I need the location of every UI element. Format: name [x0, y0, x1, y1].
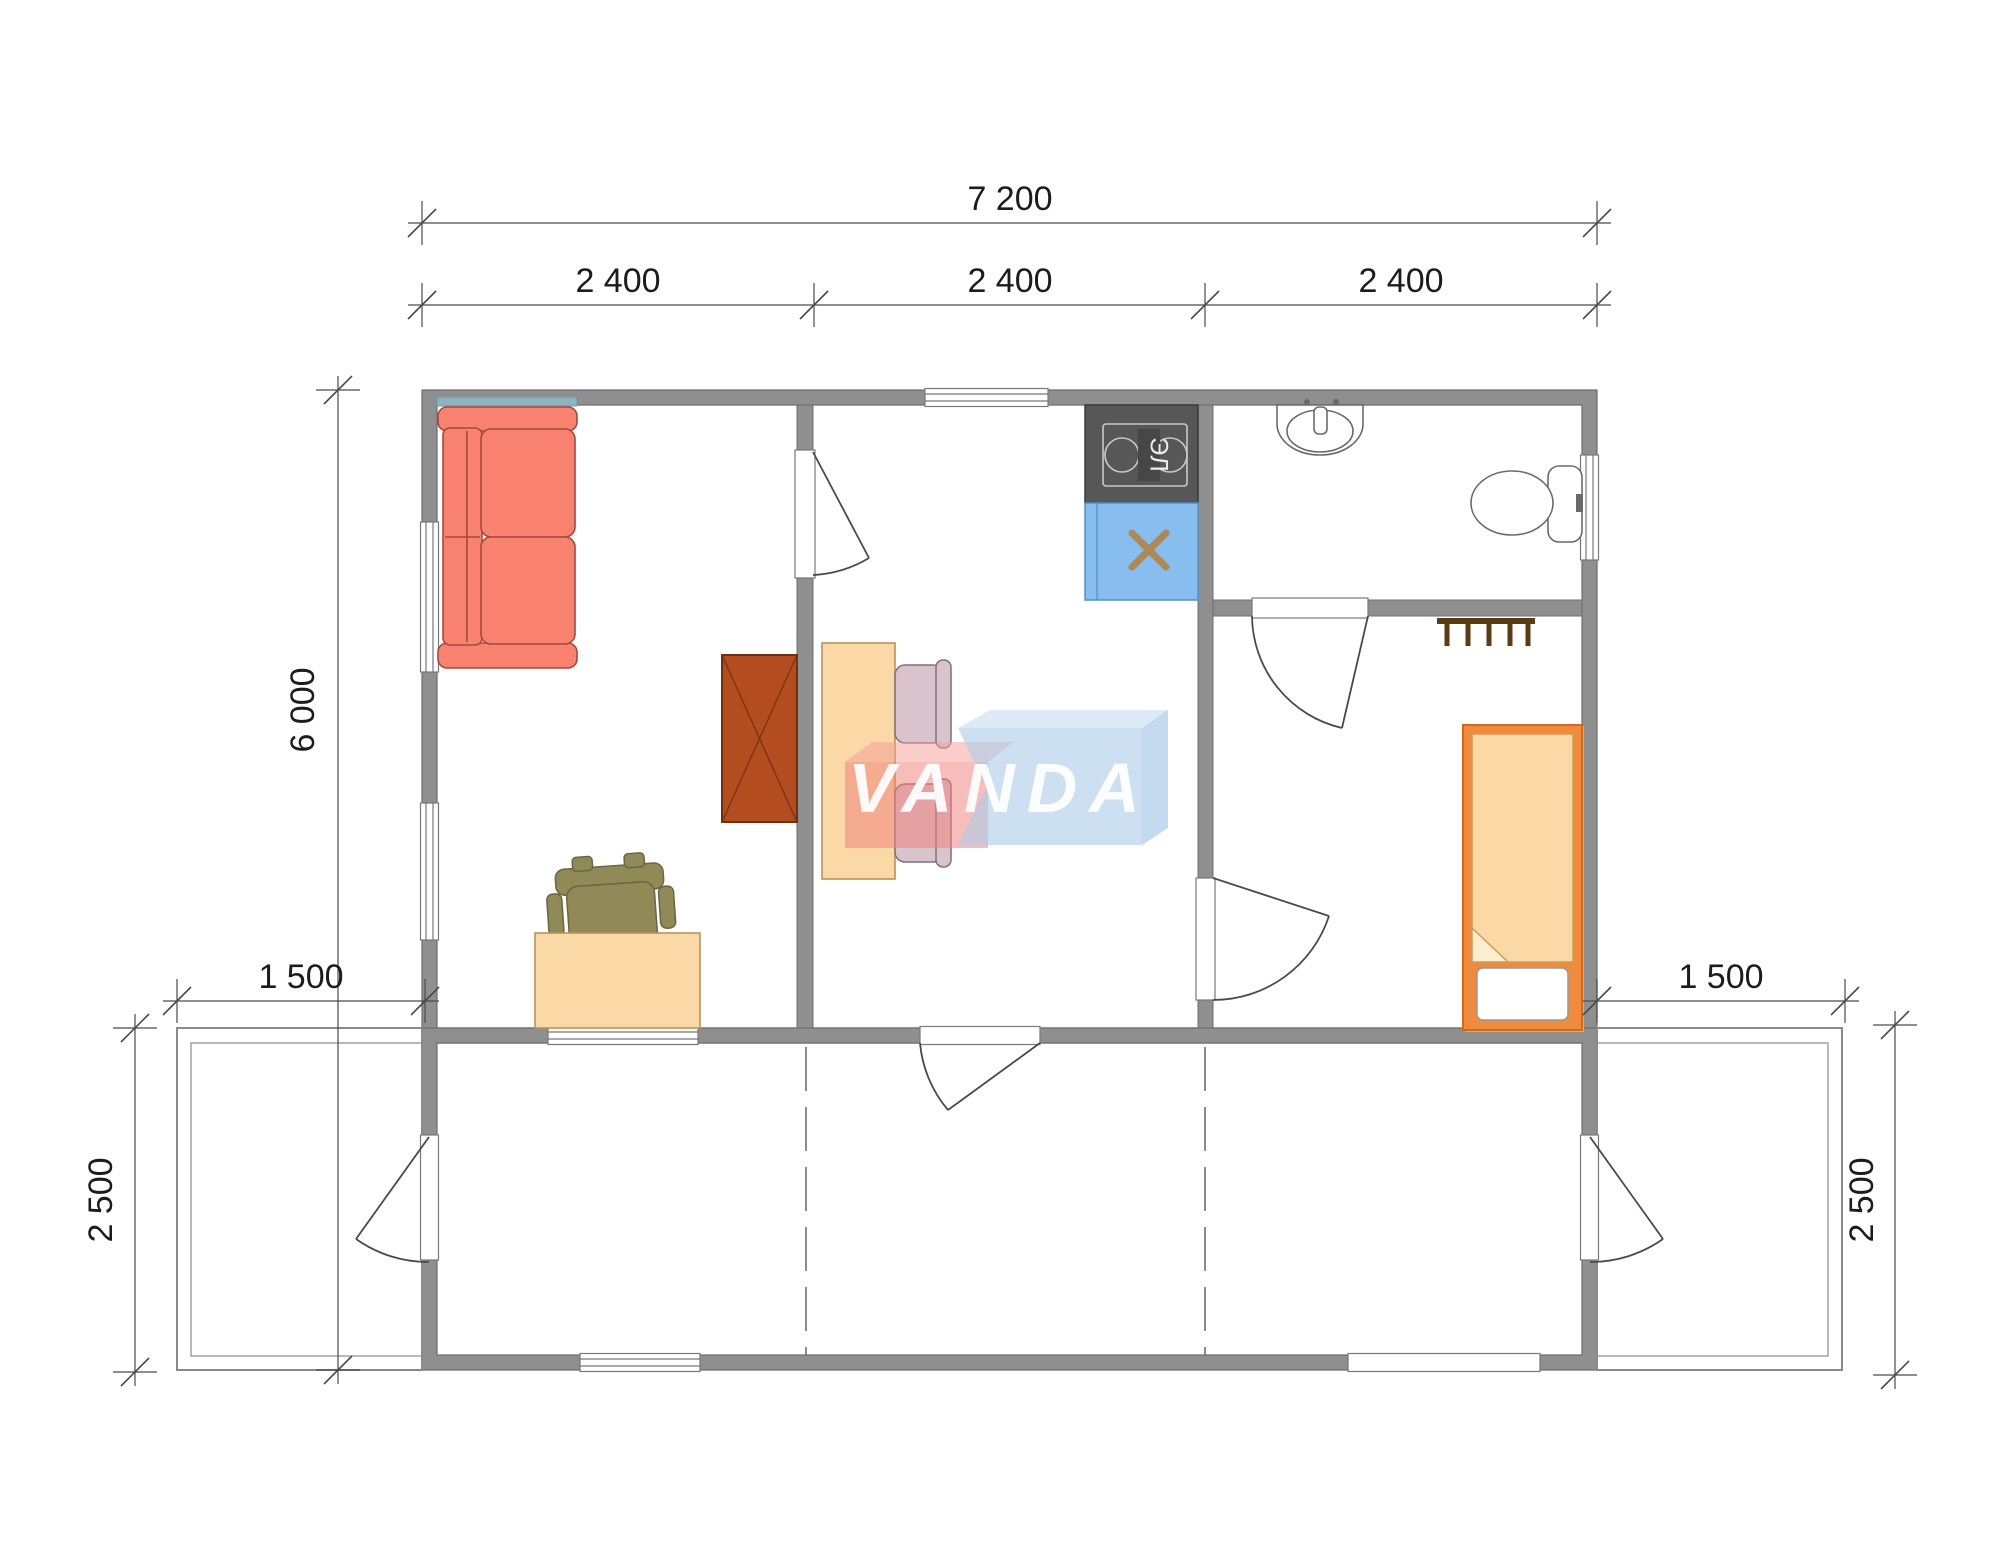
veranda-entrance-opening [1348, 1354, 1540, 1372]
column-axes [806, 1047, 1205, 1355]
window-left-1 [421, 522, 439, 672]
dimension-module-3-label: 2 400 [1358, 262, 1443, 300]
bathroom-sink [1277, 399, 1363, 455]
door-living-dining [813, 452, 869, 575]
dining-chair-1 [895, 660, 951, 748]
desk [535, 933, 700, 1028]
dimension-terrace-right-width: 1 500 [1583, 958, 1859, 1023]
dimension-terrace-left-depth-label: 2 500 [82, 1157, 120, 1242]
door-gap-terrace-right [1581, 1135, 1599, 1260]
office-chair-arm-right [658, 886, 676, 929]
kitchen-sink [1085, 503, 1198, 600]
door-terrace-right [1590, 1137, 1663, 1262]
window-top-dining [925, 389, 1048, 407]
dimension-side-height: 6 000 [284, 376, 360, 1384]
door-terrace-left [356, 1137, 429, 1262]
bed-blanket [1472, 734, 1573, 962]
dimension-terrace-left-depth: 2 500 [82, 1014, 157, 1386]
dimension-terrace-left-width: 1 500 [163, 958, 439, 1023]
wardrobe [722, 655, 797, 822]
door-gap-hall-veranda [920, 1027, 1040, 1045]
dimension-total-width-label: 7 200 [967, 180, 1052, 218]
window-bathroom [1581, 455, 1599, 560]
dimension-side-height-label: 6 000 [284, 667, 322, 752]
window-veranda [580, 1354, 700, 1372]
dimension-module-1-label: 2 400 [575, 262, 660, 300]
veranda-perimeter-wall [422, 1028, 1597, 1370]
kitchen-counter: ЭЛ [1085, 405, 1198, 503]
dimension-total-width: 7 200 [408, 180, 1611, 245]
bed-pillow [1477, 968, 1568, 1020]
watermark-text: VANDA [848, 749, 1152, 827]
door-gaps [421, 450, 1599, 1260]
door-gap-living-dining [795, 450, 815, 578]
sofa-back-panel-strip [437, 397, 577, 406]
dimension-module-2-label: 2 400 [967, 262, 1052, 300]
door-gap-bathroom [1252, 598, 1368, 618]
terrace-left-inner [191, 1043, 422, 1356]
toilet [1471, 466, 1583, 542]
sofa-seat-1 [481, 429, 575, 537]
window-left-2 [421, 803, 439, 940]
sofa-armrest-bottom [438, 643, 577, 668]
floor-plan-page: ЭЛ [0, 0, 2000, 1563]
door-hall-veranda [920, 1043, 1040, 1110]
dimension-terrace-left-width-label: 1 500 [258, 958, 343, 996]
dimension-terrace-right-width-label: 1 500 [1678, 958, 1763, 996]
dimension-terrace-right-depth: 2 500 [1843, 1011, 1917, 1389]
sofa-seat-2 [481, 537, 575, 644]
terrace-right-inner [1597, 1043, 1828, 1356]
floor-plan-svg: ЭЛ [0, 0, 2000, 1563]
dimension-modules: 2 400 2 400 2 400 [408, 262, 1611, 327]
office-chair-arm-left [546, 893, 564, 936]
bed [1463, 725, 1584, 1032]
door-bedroom [1213, 878, 1329, 1000]
door-bathroom [1252, 616, 1368, 728]
door-gap-terrace-left [421, 1135, 439, 1260]
sofa [437, 397, 577, 668]
watermark-blue-top-face [958, 710, 1168, 728]
dimension-terrace-right-depth-label: 2 500 [1843, 1157, 1881, 1242]
window-under-desk [548, 1027, 698, 1045]
stove-label: ЭЛ [1144, 437, 1172, 473]
towel-rack [1437, 621, 1535, 646]
door-gap-bedroom [1196, 878, 1215, 1000]
